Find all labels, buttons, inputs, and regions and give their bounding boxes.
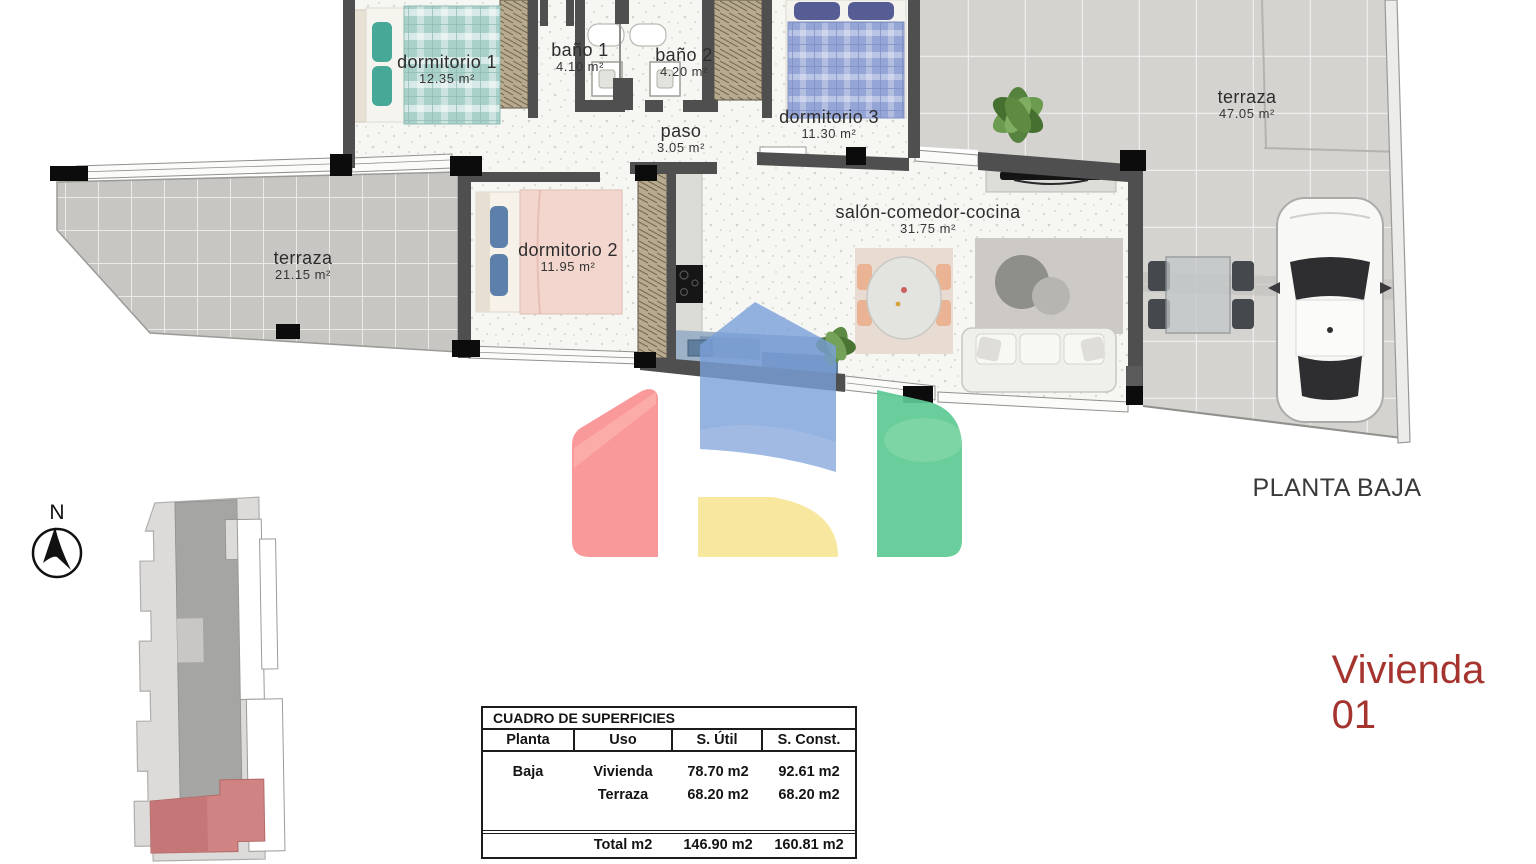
room-label-dormitorio-2: dormitorio 2 11.95m² — [518, 240, 618, 275]
room-label-bano-2: baño 2 4.20m² — [655, 45, 712, 80]
bed-dormitorio-3 — [786, 0, 906, 118]
sofa — [962, 328, 1116, 392]
surfaces-table-header: Planta Uso S. Útil S. Const. — [483, 730, 855, 752]
car — [1268, 198, 1392, 422]
terrace-left-tiles — [57, 172, 458, 352]
north-compass — [33, 527, 81, 577]
total-label: Total m2 — [573, 837, 673, 853]
coffee-tables — [975, 238, 1123, 334]
logo-red-shape — [572, 389, 658, 557]
surfaces-table: CUADRO DE SUPERFICIES Planta Uso S. Útil… — [481, 706, 857, 859]
surfaces-table-body: Baja Vivienda 78.70 m2 92.61 m2 Terraza … — [483, 752, 855, 830]
room-label-salon-comedor-cocina: salón-comedor-cocina 31.75m² — [835, 202, 1020, 237]
north-arrow-icon — [43, 527, 71, 570]
total-s-util: 146.90 m2 — [673, 837, 763, 853]
logo-yellow-shape — [698, 497, 838, 557]
table-row: Baja Vivienda 78.70 m2 92.61 m2 — [483, 764, 855, 787]
surfaces-table-title: CUADRO DE SUPERFICIES — [483, 708, 855, 730]
compass-north-label: N — [49, 501, 64, 525]
room-label-paso: paso 3.05m² — [657, 121, 705, 156]
column-header-s-util: S. Útil — [673, 730, 763, 750]
unit-title: Vivienda 01 — [1332, 648, 1485, 738]
cooktop — [675, 265, 703, 303]
room-label-bano-1: baño 1 4.10m² — [551, 40, 608, 75]
room-label-dormitorio-1: dormitorio 1 12.35m² — [397, 52, 497, 87]
room-label-terraza-izquierda: terraza 21.15m² — [274, 248, 333, 283]
room-label-terraza-derecha: terraza 47.05m² — [1218, 87, 1277, 122]
column-header-planta: Planta — [483, 730, 573, 750]
surfaces-table-total-row: Total m2 146.90 m2 160.81 m2 — [483, 830, 855, 857]
logo-green-shape — [877, 390, 962, 557]
room-label-dormitorio-3: dormitorio 3 11.30m² — [779, 107, 879, 142]
table-row: Terraza 68.20 m2 68.20 m2 — [483, 787, 855, 810]
floor-title: PLANTA BAJA — [1253, 474, 1422, 503]
total-s-const: 160.81 m2 — [763, 837, 855, 853]
dining-set — [855, 248, 953, 354]
floorplan-page: dormitorio 1 12.35m² baño 1 4.10m² baño … — [0, 0, 1536, 864]
column-header-uso: Uso — [573, 730, 673, 750]
site-plan-minimap — [129, 497, 285, 862]
column-header-s-const: S. Const. — [763, 730, 855, 750]
